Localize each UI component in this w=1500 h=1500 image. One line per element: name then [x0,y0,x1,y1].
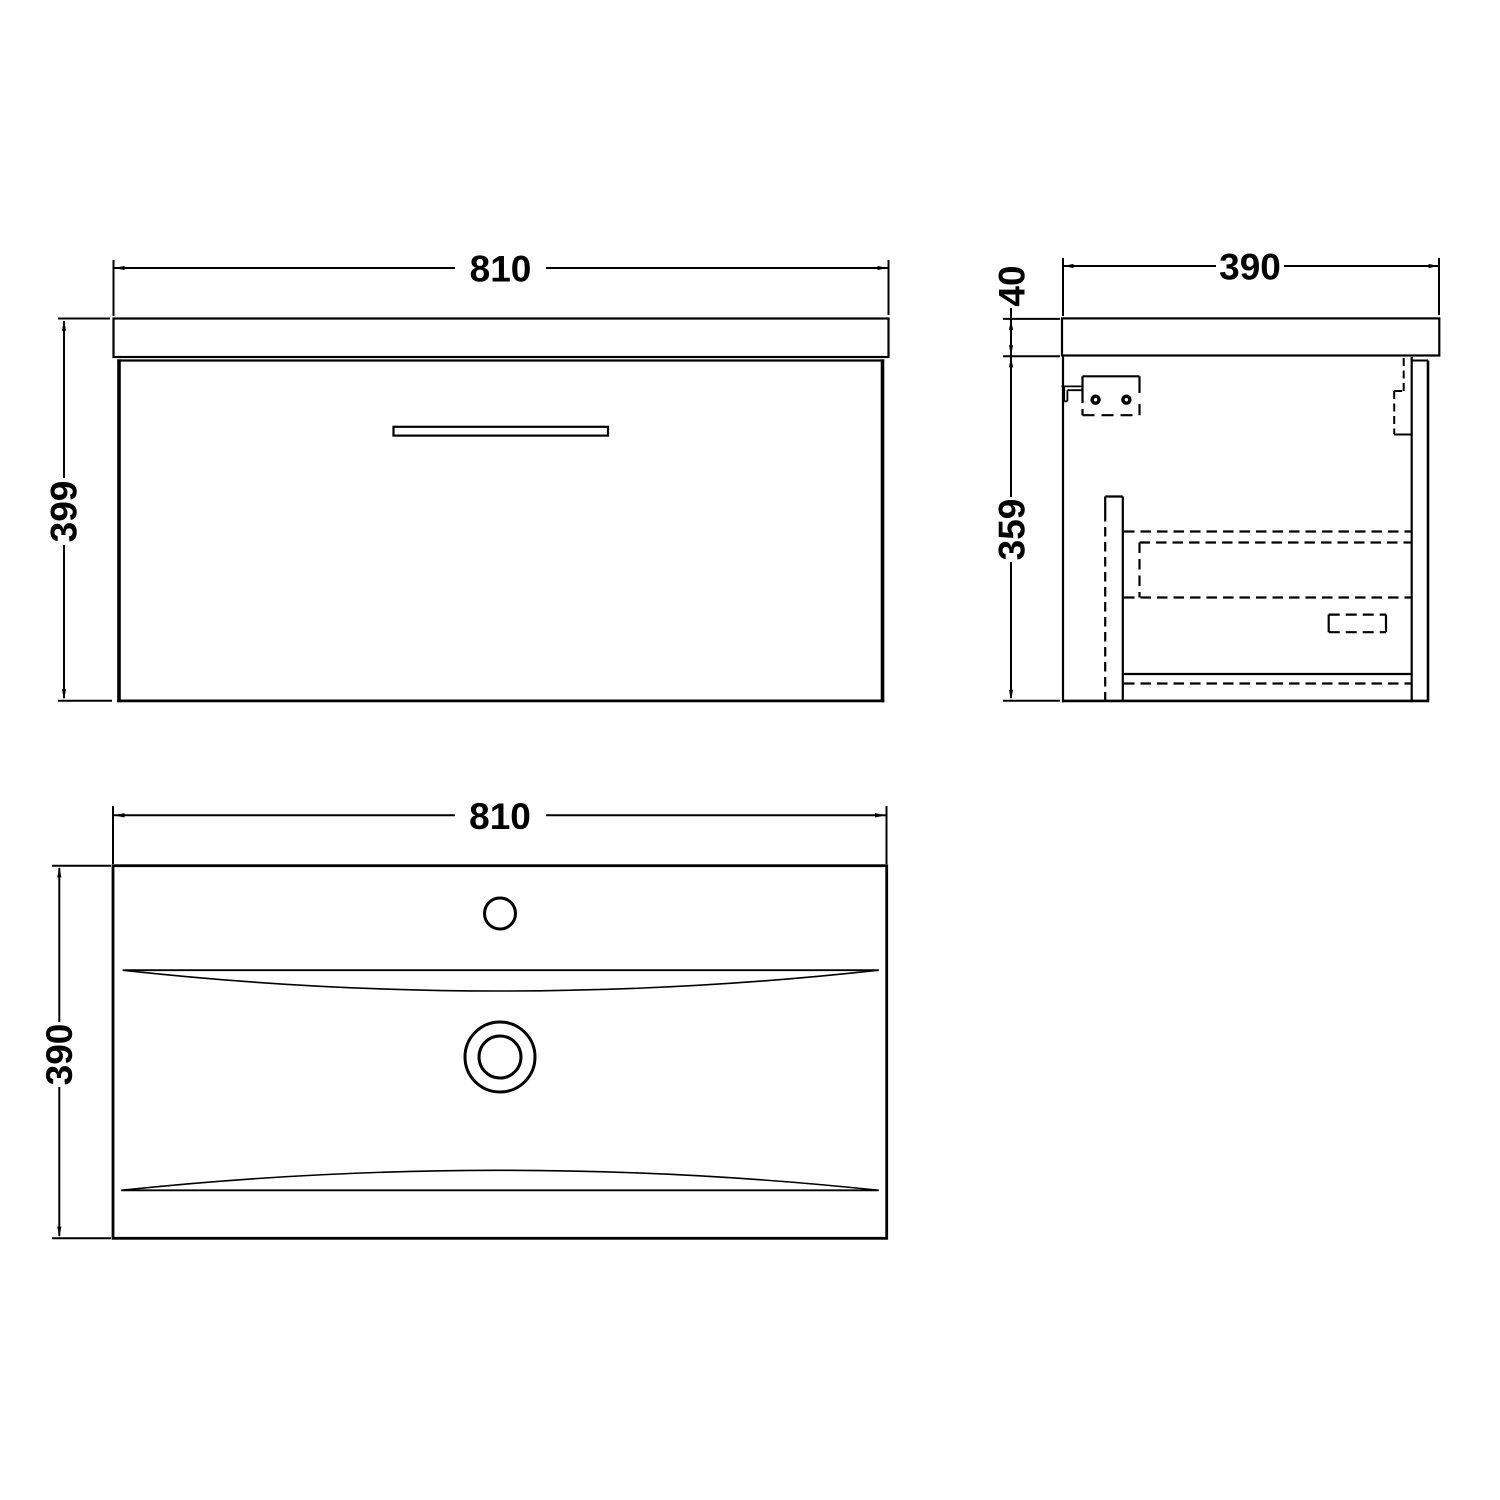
svg-text:390: 390 [1219,247,1281,288]
svg-text:810: 810 [469,796,531,837]
svg-text:810: 810 [470,249,532,290]
svg-text:390: 390 [39,1024,80,1086]
svg-text:40: 40 [992,265,1033,306]
svg-text:359: 359 [992,499,1033,561]
svg-text:399: 399 [44,481,85,543]
